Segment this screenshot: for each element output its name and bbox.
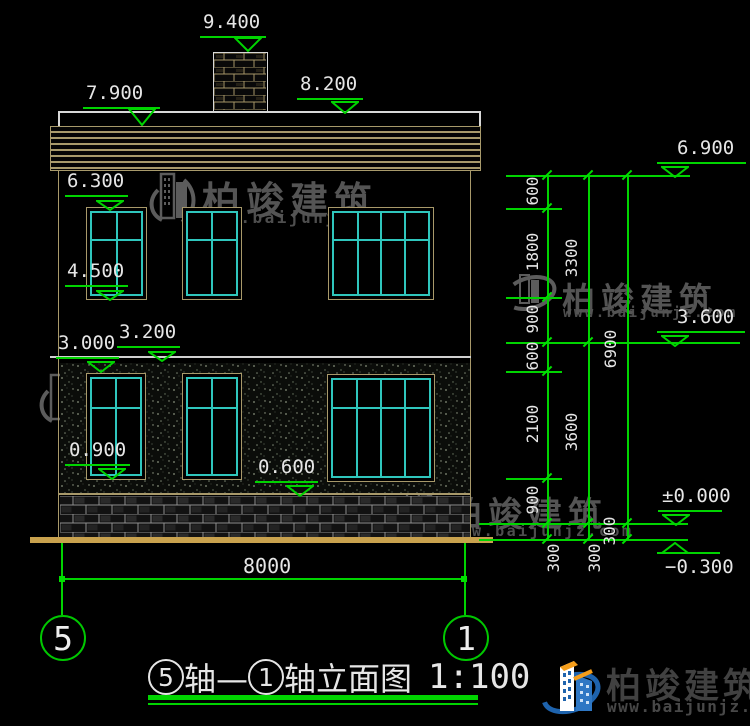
ground-line	[30, 537, 493, 543]
elevation-mark-triangle	[662, 511, 690, 530]
window	[182, 207, 242, 300]
plinth-top-line	[59, 493, 470, 495]
window-transom	[92, 407, 140, 409]
window-mullion	[356, 380, 358, 476]
dimension-label: 300	[546, 544, 562, 573]
dimension-label: 6900	[603, 330, 619, 369]
elevation-mark-label: 6.900	[677, 139, 734, 158]
extension-line	[506, 371, 562, 373]
window-inner-frame	[90, 377, 142, 476]
overall-dimension-label: 8000	[243, 556, 291, 576]
title-underline-thick	[148, 695, 478, 700]
dimension-label: 600	[525, 342, 541, 371]
dimension-dot	[461, 576, 467, 582]
title-suffix-text: 轴立面图	[284, 654, 412, 700]
window-inner-frame	[332, 211, 430, 296]
elevation-mark-label: 9.400	[203, 13, 260, 32]
window-mullion	[211, 213, 213, 294]
title-axis-bubble-start: 5	[148, 659, 184, 695]
window-mullion	[380, 213, 382, 294]
dimension-label: 900	[525, 486, 541, 515]
window-mullion	[211, 379, 213, 474]
elevation-mark-label: 8.200	[300, 75, 357, 94]
chimney	[213, 52, 268, 112]
elevation-mark-triangle	[128, 108, 156, 130]
axis-bubble-label: 5	[53, 619, 73, 658]
dimension-label: 900	[525, 305, 541, 334]
parapet-edge-left	[58, 112, 60, 127]
axis-bubble-label: 1	[456, 619, 476, 658]
window-transom	[333, 407, 429, 409]
elevation-mark-label: −0.300	[665, 558, 734, 577]
elevation-mark-triangle	[331, 99, 359, 118]
dimension-label: 600	[525, 177, 541, 206]
dimension-chain-line	[627, 175, 629, 539]
title-scale: 1:100	[428, 657, 530, 697]
title-mid-text: 轴—	[184, 654, 248, 700]
dimension-label: 2100	[525, 405, 541, 444]
title-underline-thin	[148, 703, 478, 705]
elevation-mark-label: 3.000	[58, 334, 115, 353]
elevation-mark-label: 7.900	[86, 84, 143, 103]
parapet-edge-right	[479, 112, 481, 127]
extension-line	[506, 297, 562, 299]
dimension-chain-line	[588, 175, 590, 539]
dimension-label: 3300	[564, 239, 580, 278]
window-mullion	[357, 213, 359, 294]
extension-line	[506, 208, 562, 210]
dimension-chain-line	[547, 175, 549, 539]
elevation-mark-triangle	[661, 539, 689, 558]
dimension-label: 300	[587, 544, 603, 573]
axis-bubble-5: 5	[40, 615, 86, 661]
elevation-mark-label: 6.300	[67, 172, 124, 191]
dimension-label: 1800	[525, 233, 541, 272]
elevation-mark-triangle	[661, 163, 689, 182]
elevation-mark-label: 0.900	[69, 441, 126, 460]
brand-logo-icon	[540, 653, 604, 725]
elevation-mark-label: 3.600	[677, 308, 734, 327]
plinth-brick-band	[60, 496, 470, 541]
elevation-mark-label: ±0.000	[662, 487, 731, 506]
window-transom	[334, 239, 428, 241]
roof-fascia-band	[50, 126, 481, 171]
window-transom	[188, 239, 236, 241]
elevation-mark-triangle	[661, 332, 689, 351]
drawing-title: 5 轴— 1 轴立面图 1:100	[148, 654, 530, 700]
elevation-mark-triangle	[148, 347, 176, 366]
elevation-mark-label: 3.200	[119, 323, 176, 342]
extension-line	[506, 478, 562, 480]
elevation-mark-label: 0.600	[258, 458, 315, 477]
elevation-mark-triangle	[98, 465, 126, 484]
dimension-label: 3600	[564, 413, 580, 452]
window	[327, 374, 435, 482]
elevation-drawing: 柏竣建筑 www.baijunjz.com 柏竣建筑 www.baijunjz.…	[0, 0, 750, 726]
window-inner-frame	[186, 377, 238, 476]
elevation-mark-triangle	[96, 196, 124, 215]
window	[182, 373, 242, 480]
title-bubble-label: 5	[158, 663, 174, 692]
elevation-mark-triangle	[96, 286, 124, 305]
window	[328, 207, 434, 300]
window-inner-frame	[331, 378, 431, 478]
dimension-dot	[59, 576, 65, 582]
elevation-mark-triangle	[234, 37, 262, 56]
dimension-label: 300	[602, 517, 618, 546]
title-bubble-label: 1	[258, 663, 274, 692]
window-mullion	[380, 380, 382, 476]
elevation-mark-triangle	[87, 358, 115, 377]
parapet-line	[58, 111, 481, 113]
window-transom	[188, 407, 236, 409]
elevation-mark-label: 4.500	[67, 262, 124, 281]
window-inner-frame	[186, 211, 238, 296]
window-mullion	[404, 380, 406, 476]
elevation-mark-triangle	[286, 482, 314, 501]
window-inner-frame	[90, 211, 143, 296]
window-mullion	[404, 213, 406, 294]
brand-url-text: www.baijunjz.com	[607, 697, 750, 716]
window-transom	[92, 239, 141, 241]
overall-dimension-line	[61, 578, 465, 580]
title-axis-bubble-end: 1	[248, 659, 284, 695]
